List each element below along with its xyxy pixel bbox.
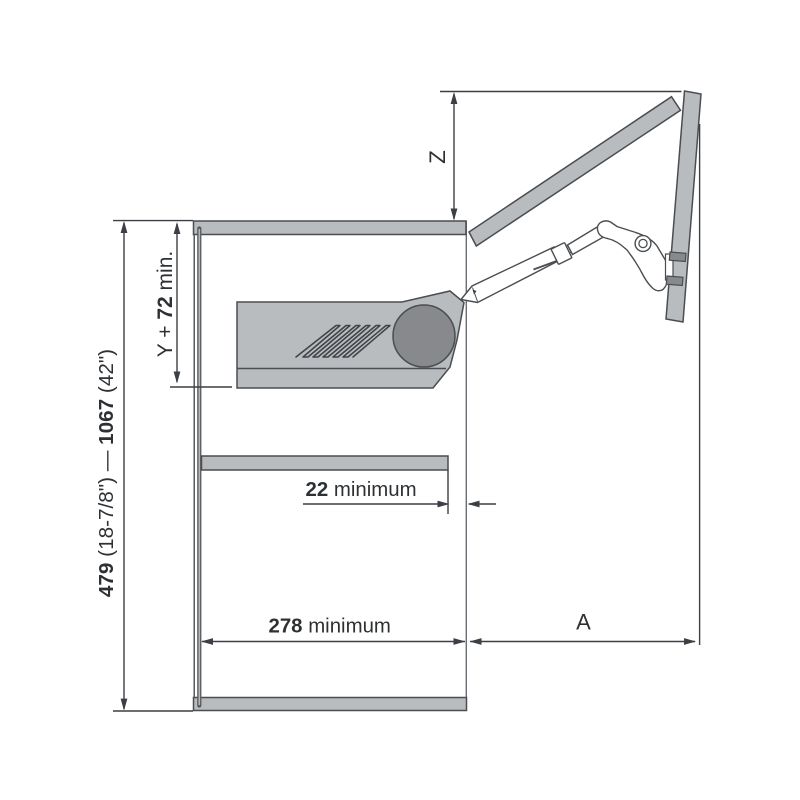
svg-text:A: A	[576, 610, 591, 635]
svg-text:Y + 72 min.: Y + 72 min.	[154, 251, 177, 357]
svg-text:Z: Z	[425, 150, 450, 164]
svg-text:479 (18-7/8") — 1067 (42"): 479 (18-7/8") — 1067 (42")	[95, 349, 118, 597]
svg-text:278 minimum: 278 minimum	[269, 616, 391, 638]
svg-text:22 minimum: 22 minimum	[306, 479, 417, 501]
